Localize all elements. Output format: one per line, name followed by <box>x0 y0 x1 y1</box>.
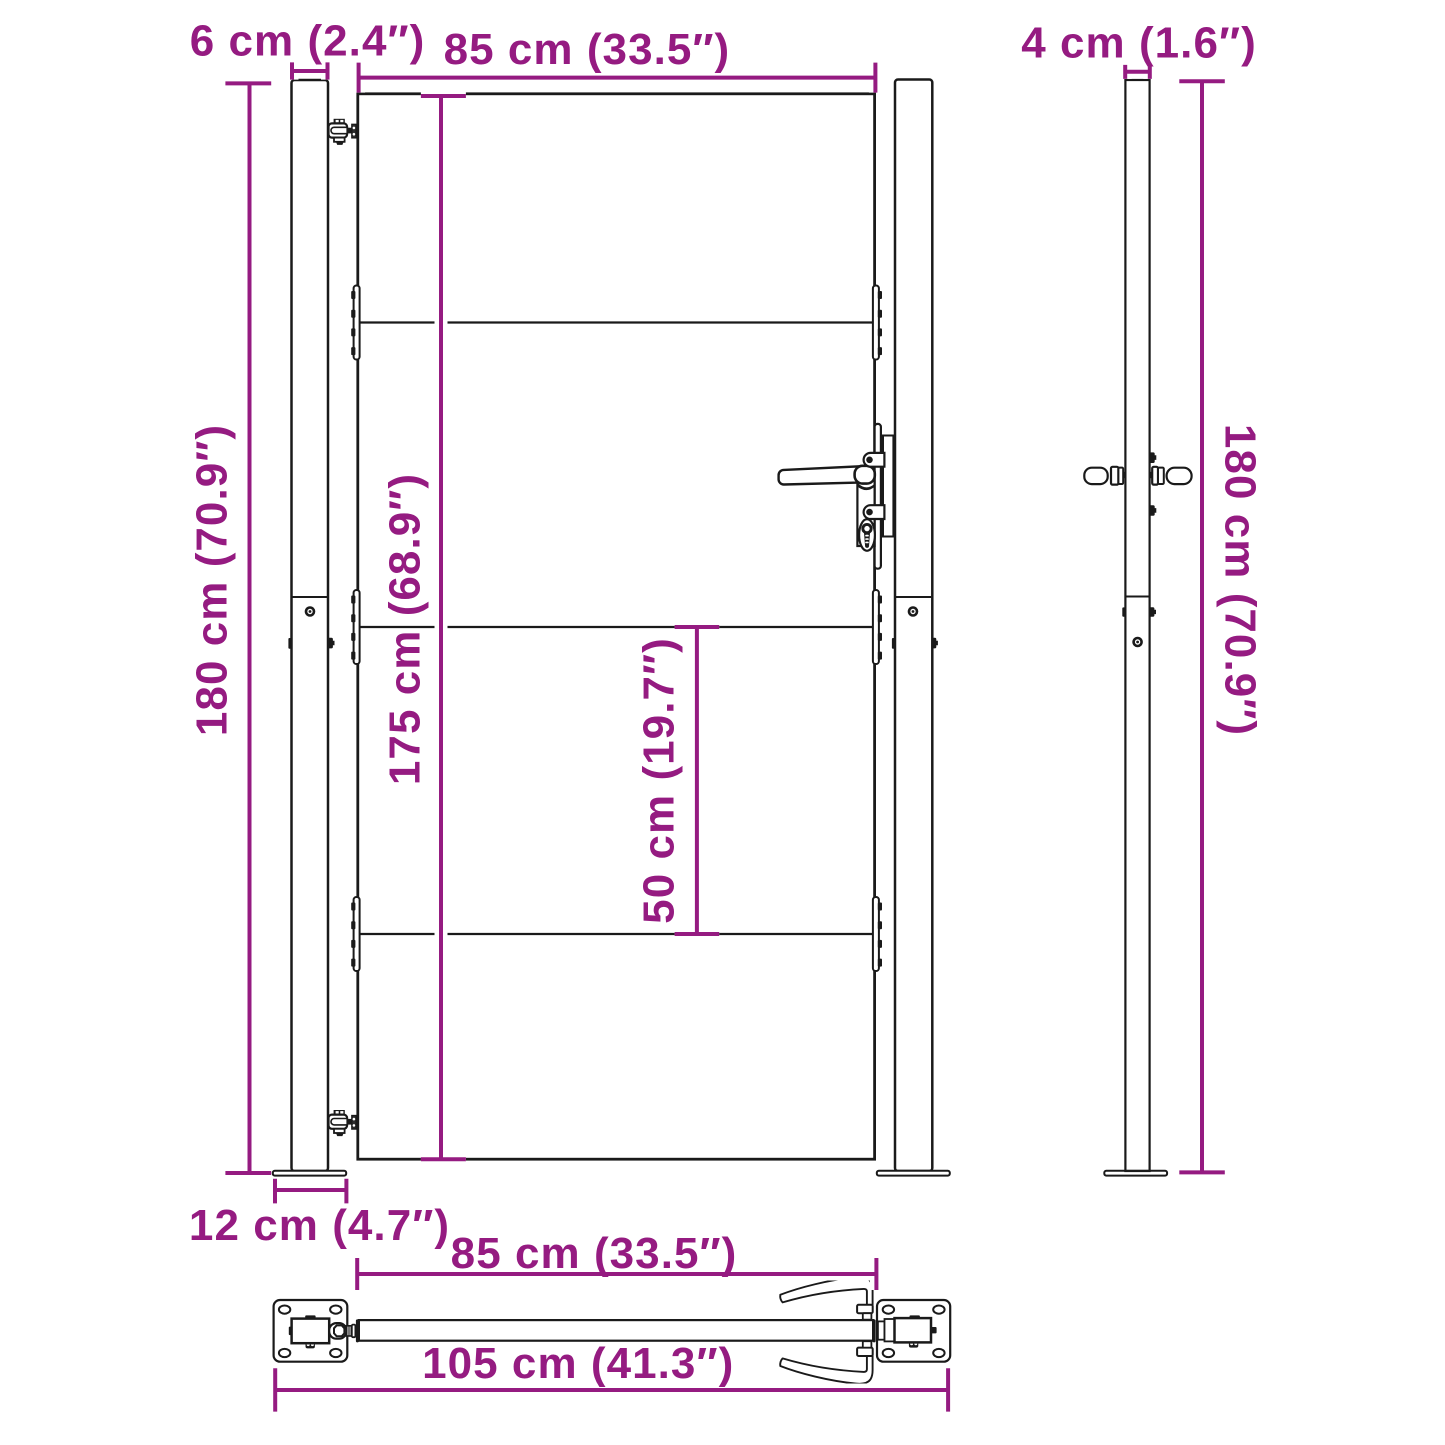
svg-text:175 cm (68.9″): 175 cm (68.9″) <box>381 473 430 785</box>
svg-text:85 cm (33.5″): 85 cm (33.5″) <box>444 25 731 74</box>
svg-text:85 cm (33.5″): 85 cm (33.5″) <box>451 1229 738 1278</box>
svg-text:180 cm (70.9″): 180 cm (70.9″) <box>1215 424 1264 736</box>
svg-text:6 cm (2.4″): 6 cm (2.4″) <box>190 17 426 66</box>
svg-text:180 cm (70.9″): 180 cm (70.9″) <box>188 424 237 736</box>
svg-text:4 cm (1.6″): 4 cm (1.6″) <box>1021 19 1257 68</box>
svg-text:105 cm (41.3″): 105 cm (41.3″) <box>422 1339 734 1388</box>
svg-text:50 cm (19.7″): 50 cm (19.7″) <box>635 637 684 924</box>
svg-text:12 cm (4.7″): 12 cm (4.7″) <box>189 1201 450 1250</box>
